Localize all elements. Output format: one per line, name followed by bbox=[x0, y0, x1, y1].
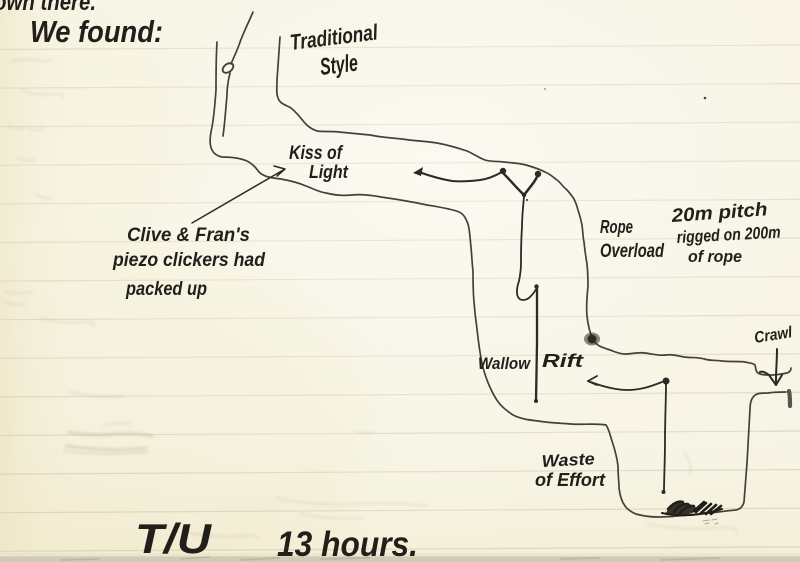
svg-text:13 hours.: 13 hours. bbox=[277, 525, 418, 562]
svg-text:Light: Light bbox=[309, 162, 349, 182]
svg-text:T/U: T/U bbox=[135, 515, 213, 562]
svg-text:We found:: We found: bbox=[30, 14, 163, 49]
svg-text:Kiss of: Kiss of bbox=[289, 143, 343, 164]
svg-text:Wallow: Wallow bbox=[478, 354, 532, 373]
svg-text:Overload: Overload bbox=[600, 241, 664, 262]
svg-text:Style: Style bbox=[318, 50, 359, 81]
svg-text:Rift: Rift bbox=[542, 351, 584, 371]
svg-text:Waste: Waste bbox=[541, 449, 595, 471]
svg-text:piezo clickers had: piezo clickers had bbox=[112, 250, 265, 271]
svg-text:packed up: packed up bbox=[125, 279, 207, 300]
svg-text:of rope: of rope bbox=[688, 247, 742, 266]
svg-text:Clive & Fran's: Clive & Fran's bbox=[127, 225, 250, 246]
svg-text:of Effort: of Effort bbox=[535, 470, 606, 490]
svg-text:Rope: Rope bbox=[600, 217, 633, 237]
